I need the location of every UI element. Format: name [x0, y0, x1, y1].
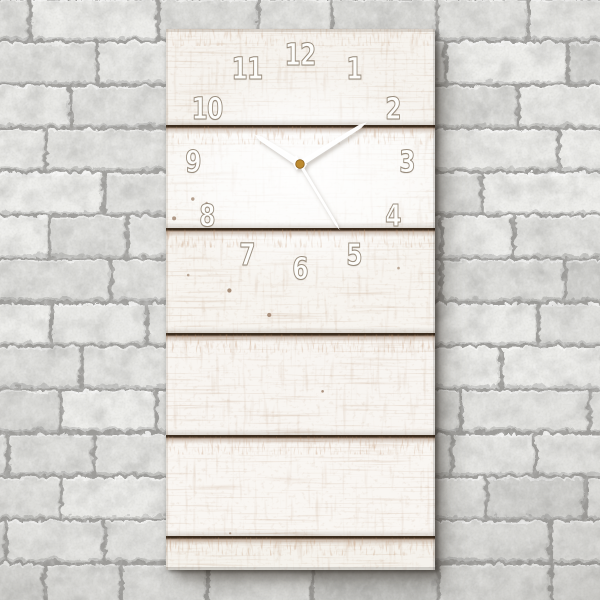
clock-numeral-3: 3	[399, 148, 415, 178]
clock-numeral-6: 6	[292, 255, 308, 285]
clock-numeral-5: 5	[346, 241, 362, 271]
clock-numeral-8: 8	[200, 202, 216, 232]
clock-numerals: 121234567891011	[166, 29, 435, 570]
clock-numeral-7: 7	[239, 241, 255, 271]
clock-numeral-11: 11	[231, 55, 262, 85]
product-photo: 121234567891011	[0, 0, 600, 600]
wall-clock: 121234567891011	[166, 29, 435, 570]
clock-numeral-10: 10	[192, 95, 223, 125]
clock-numeral-9: 9	[185, 148, 201, 178]
clock-numeral-2: 2	[385, 95, 401, 125]
clock-numeral-1: 1	[346, 55, 362, 85]
clock-numeral-12: 12	[284, 41, 315, 71]
clock-numeral-4: 4	[385, 202, 401, 232]
